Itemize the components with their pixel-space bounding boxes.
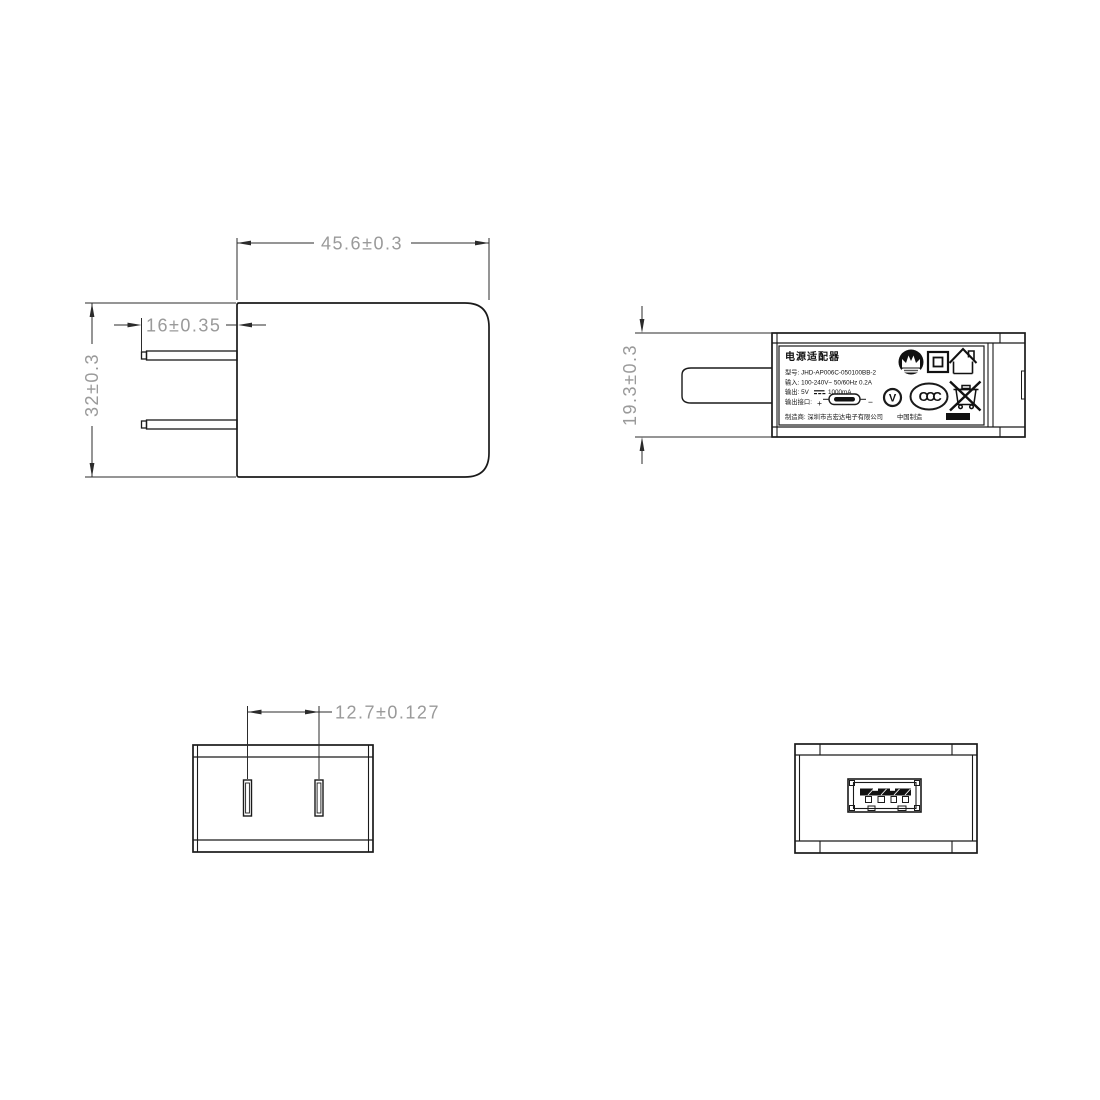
dim-width: 45.6±0.3 [237,234,489,301]
usb-tongue [860,789,911,796]
label-made-in: 中国制造 [897,412,923,421]
prong-slot-left [244,780,252,816]
dc-symbol-icon [814,391,825,394]
weee-bin-icon [950,382,981,411]
rating-label: 电源适配器 型号: JHD-AP006C-050100BB-2 输入: 100-… [779,346,984,425]
dim-prong-length-text: 16±0.35 [146,316,221,336]
dim-thickness: 19.3±0.3 [620,306,772,464]
prong-side-profile [682,368,772,403]
usb-contacts [866,797,909,803]
dim-width-text: 45.6±0.3 [321,234,403,254]
dim-pin-spacing-text: 12.7±0.127 [335,703,440,723]
top-body-outline [193,745,373,852]
dim-thickness-text: 19.3±0.3 [620,344,640,426]
plug-prong-upper [142,351,238,360]
efficiency-v-icon: V [884,389,901,406]
prong-slot-right [315,780,323,816]
label-output-prefix: 输出: 5V [785,387,810,396]
polarity-plus: + [817,398,822,408]
svg-text:CCC: CCC [919,389,943,404]
dim-prong-length: 16±0.35 [114,316,266,353]
plug-prong-lower [142,420,238,429]
label-input: 输入: 100-240V~ 50/60Hz 0.2A [785,378,873,387]
ccc-icon: CCC [911,384,948,410]
end-view [795,744,977,853]
indoor-use-icon [950,349,977,374]
class-ii-icon [928,352,948,372]
label-title: 电源适配器 [785,350,840,363]
label-model: 型号: JHD-AP006C-050100BB-2 [785,368,876,377]
polarity-minus: − [868,397,873,407]
dim-height-text: 32±0.3 [82,353,102,417]
adapter-body-outline [237,303,489,477]
brand-logo-icon [899,350,924,375]
label-manufacturer: 制造商: 深圳市吉宏达电子有限公司 [785,412,883,421]
adapter-drawing: 45.6±0.3 16±0.35 32±0.3 [0,0,1100,1100]
black-bar [946,413,970,420]
front-view: 45.6±0.3 16±0.35 32±0.3 [82,234,489,478]
usb-a-port [848,779,921,812]
label-interface: 输出接口: [785,397,812,406]
top-view: 12.7±0.127 [193,703,440,853]
drawing-sheet: 45.6±0.3 16±0.35 32±0.3 [0,0,1100,1100]
side-view: 19.3±0.3 电源适配器 型号: JHD-AP006C-050100BB-2… [620,306,1025,464]
svg-text:V: V [889,393,897,405]
end-body-outline [795,744,977,853]
dim-pin-spacing: 12.7±0.127 [248,703,440,780]
